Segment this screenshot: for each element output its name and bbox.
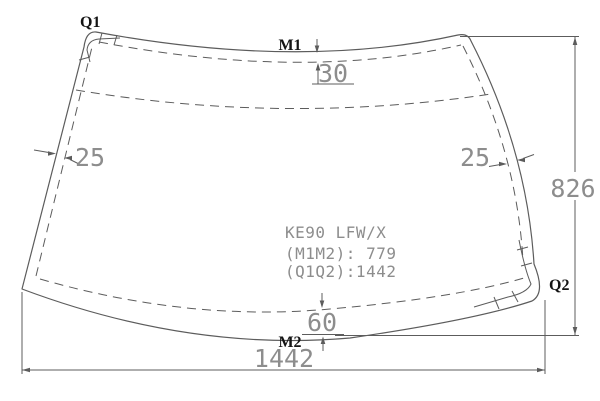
dim-bottom-band: 60 M2: [278, 293, 344, 351]
windshield-technical-drawing: M1 30 25 25 826 60 M2: [0, 0, 600, 401]
part-model: KE90 LFW/X: [285, 223, 386, 242]
q2-corner-detail: [474, 240, 532, 309]
overall-width-value: 1442: [254, 344, 314, 373]
left-band-value: 25: [75, 143, 105, 172]
q1-corner-detail: [79, 33, 120, 62]
bottom-band-value: 60: [307, 308, 337, 337]
overall-height-value: 826: [550, 174, 595, 203]
dim-left-band: 25: [34, 143, 105, 172]
top-band-value: 30: [318, 59, 348, 88]
right-band-value: 25: [460, 143, 490, 172]
dim-overall-width: 1442: [22, 292, 545, 374]
m1-label: M1: [278, 37, 301, 54]
part-q1q2-distance: (Q1Q2):1442: [285, 262, 396, 281]
q2-label: Q2: [549, 277, 569, 294]
bottom-offset-dashed-line: [40, 278, 524, 312]
q1-label: Q1: [80, 14, 100, 31]
part-m1m2-distance: (M1M2): 779: [285, 244, 396, 263]
shade-band-dashed-line: [76, 90, 491, 109]
dim-right-band: 25: [460, 143, 534, 172]
part-info-block: KE90 LFW/X (M1M2): 779 (Q1Q2):1442: [285, 223, 396, 281]
